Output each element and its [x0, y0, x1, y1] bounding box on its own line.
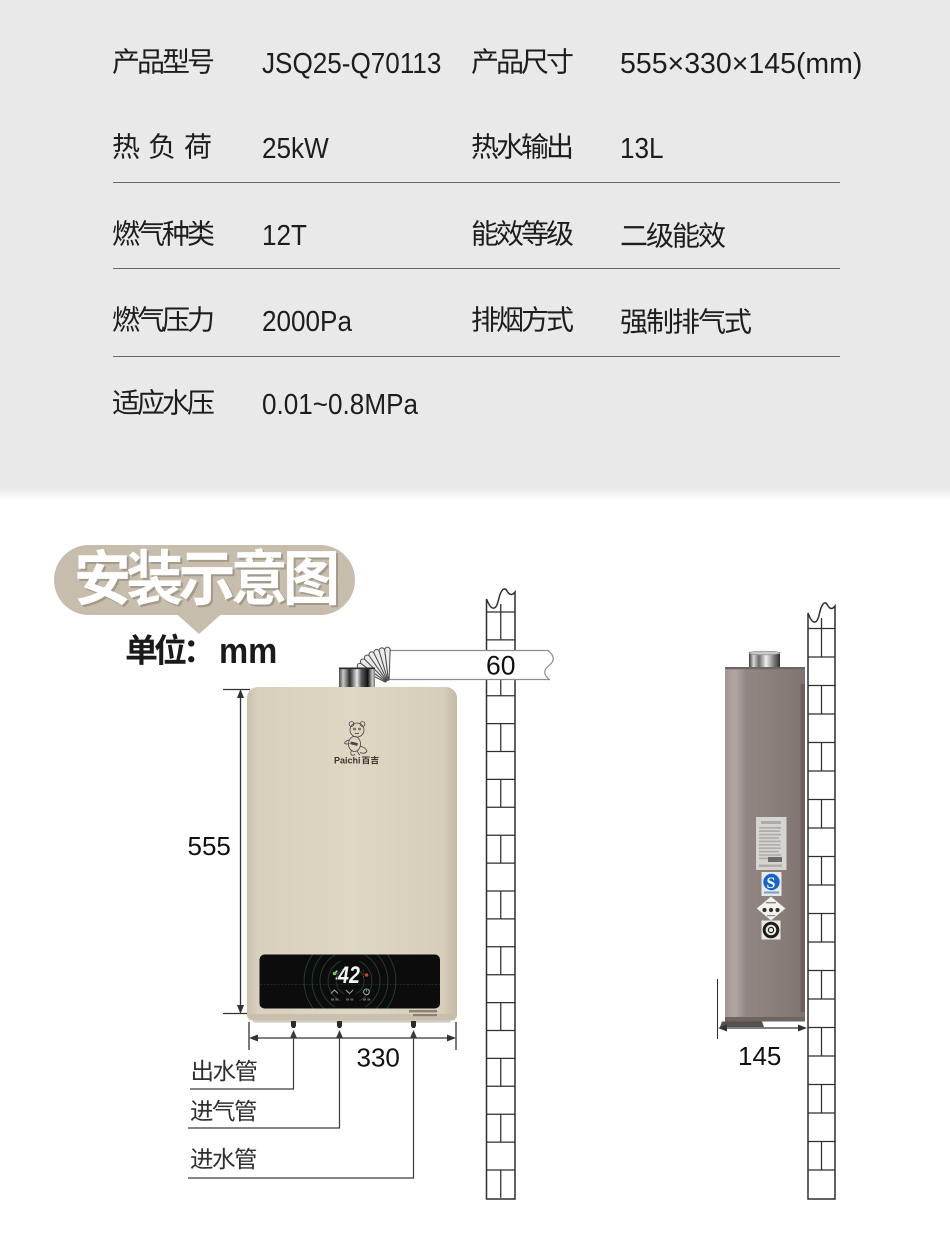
svg-text:S: S [767, 875, 776, 892]
svg-text:42: 42 [337, 961, 360, 988]
svg-text:330: 330 [357, 1043, 400, 1073]
svg-text:145: 145 [738, 1041, 781, 1071]
svg-text:555: 555 [188, 831, 231, 861]
svg-text:Paichi: Paichi [334, 756, 361, 766]
svg-text:60: 60 [486, 651, 515, 681]
